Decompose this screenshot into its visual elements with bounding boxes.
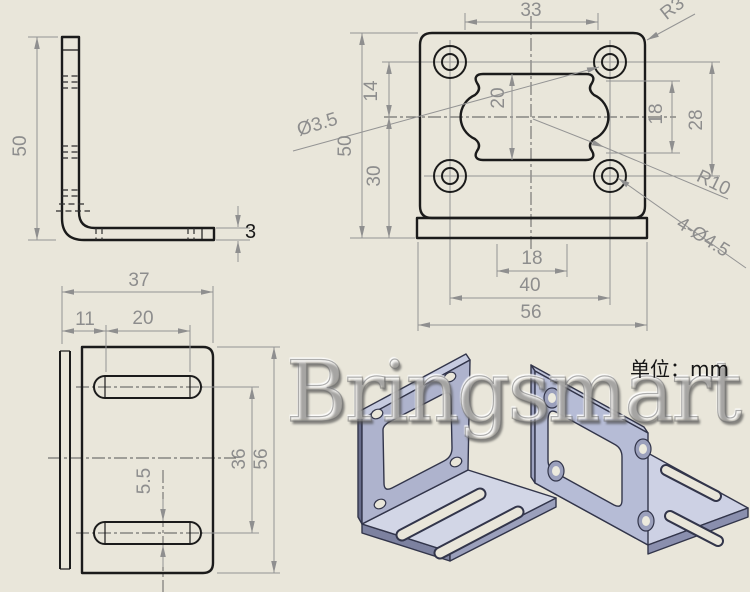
dim-front-side-span: 18 xyxy=(646,103,667,124)
dim-front-hole-span-v: 28 xyxy=(686,109,707,130)
side-outline xyxy=(62,37,214,240)
dim-front-base-span: 18 xyxy=(521,248,542,269)
dim-front-bottom-offset: 30 xyxy=(364,165,385,186)
dim-front-center-offset: 14 xyxy=(361,80,382,102)
dim-front-width: 56 xyxy=(520,302,541,323)
unit-note: 单位：mm xyxy=(630,353,729,382)
cad-drawing-sheet: 50 3 33 R3 xyxy=(0,0,750,592)
dim-front-top-span: 33 xyxy=(520,0,541,21)
dim-side-height: 50 xyxy=(10,135,31,156)
dim-bottom-slot-length: 20 xyxy=(132,308,153,329)
dim-front-hole-span-h: 40 xyxy=(519,275,540,296)
dim-side-thickness: 3 xyxy=(245,221,256,243)
dim-bottom-slot-offset: 11 xyxy=(75,309,95,330)
dim-front-height: 50 xyxy=(335,135,356,156)
dim-front-hole-callout: 4-Ø4.5 xyxy=(673,213,733,262)
drawing-canvas: 50 3 33 R3 xyxy=(0,0,750,592)
bracket-3d-front xyxy=(358,354,556,561)
side-profile-view: 50 3 xyxy=(10,37,256,262)
dim-front-pilot-dia: Ø3.5 xyxy=(295,109,341,141)
dim-bottom-length: 56 xyxy=(251,448,272,469)
bottom-plate-view: 37 11 20 36 56 5.5 xyxy=(48,270,280,592)
dim-front-corner-radius: R3 xyxy=(657,0,689,24)
side-hidden-lines xyxy=(56,76,194,240)
dim-front-cutout-height: 20 xyxy=(488,87,509,108)
bracket-3d-back xyxy=(531,365,748,554)
bent-edge-strip xyxy=(60,351,70,569)
dim-bottom-slot-span: 36 xyxy=(229,448,250,469)
dim-front-bulge-radius: R10 xyxy=(693,166,734,200)
front-face-view: 33 R3 20 Ø3.5 14 30 50 18 28 R10 4-Ø4.5 xyxy=(293,0,746,331)
dim-bottom-slot-width: 5.5 xyxy=(134,468,155,494)
front-plate-outline xyxy=(420,33,645,218)
front-flange xyxy=(417,218,647,238)
bottom-plate-outline xyxy=(82,347,213,573)
dim-bottom-width: 37 xyxy=(128,270,149,291)
